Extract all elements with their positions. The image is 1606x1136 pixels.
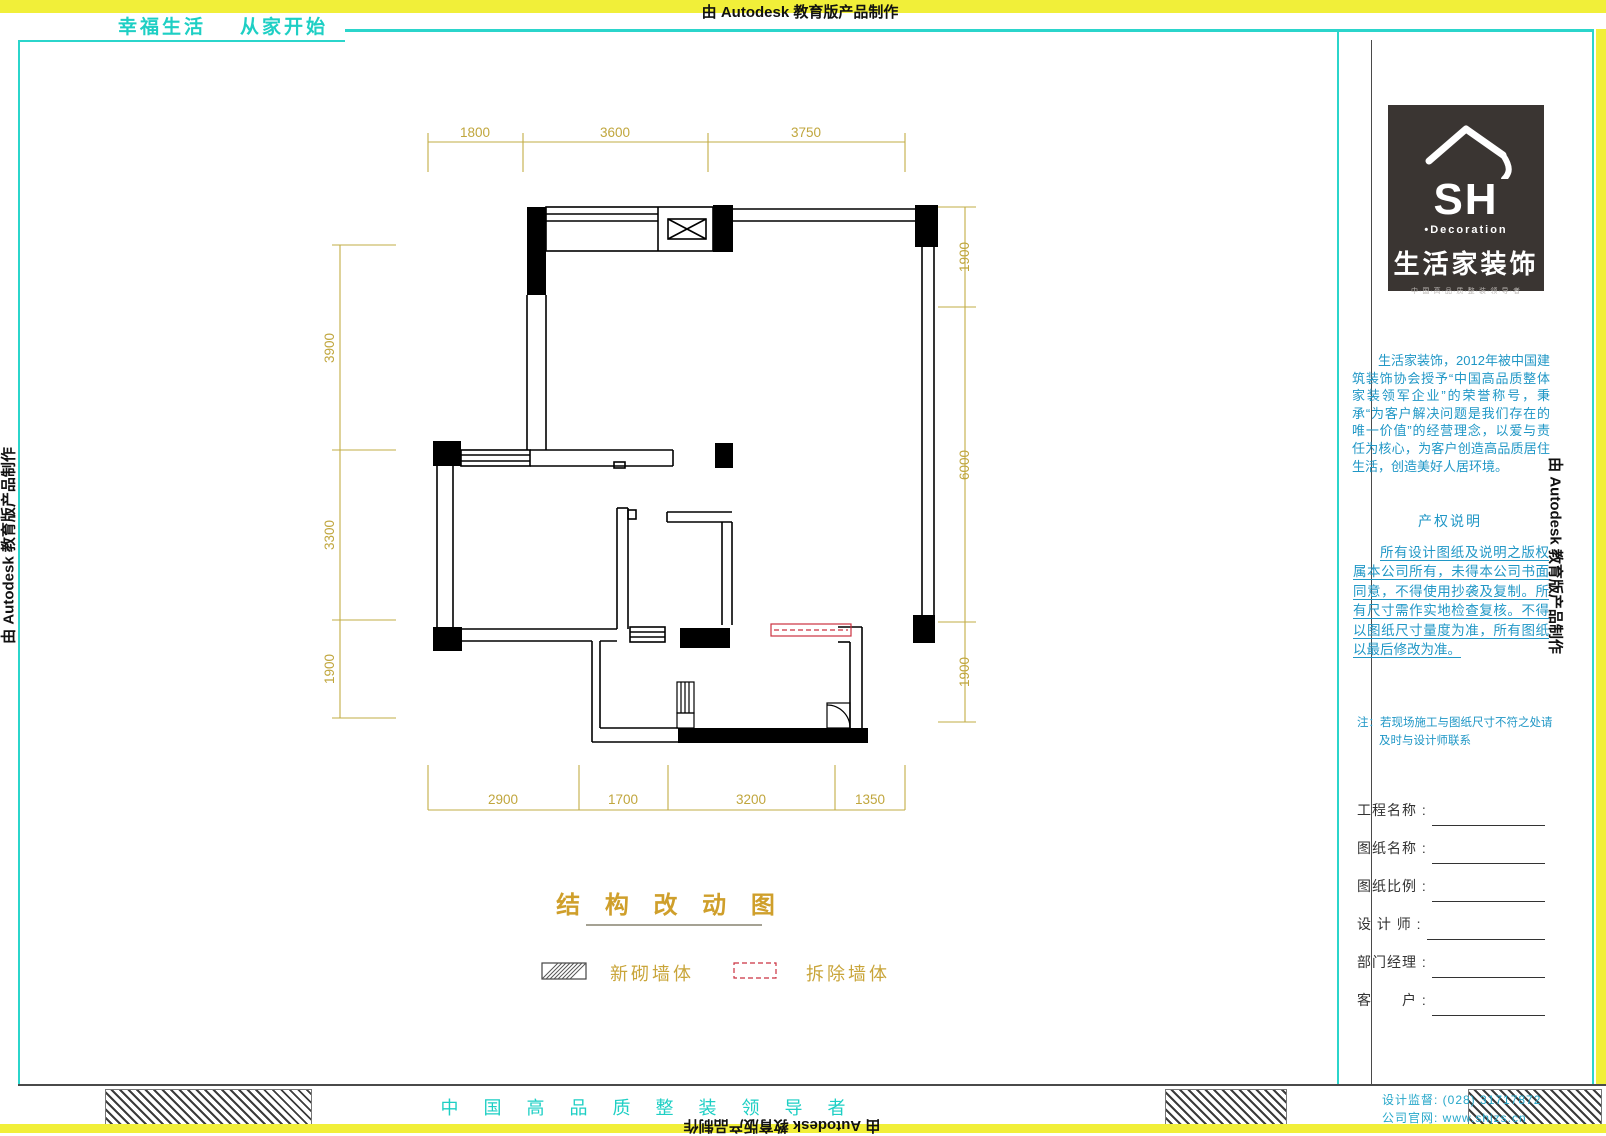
logo-decoration-text: •Decoration xyxy=(1388,224,1544,236)
walls-group xyxy=(433,205,938,743)
bottom-hatch-middle xyxy=(1165,1089,1287,1129)
shaft-x-box xyxy=(668,219,706,239)
dim-right-3: 1900 xyxy=(957,657,972,687)
logo-tagline: 中·国·高·品·质·整·装·领·导·者 xyxy=(1388,286,1544,296)
sheet-name-label: 图纸名称 : xyxy=(1357,838,1427,858)
logo-roof-icon xyxy=(1411,115,1521,179)
dim-left-3: 1900 xyxy=(322,654,337,684)
form-row-scale: 图纸比例 : xyxy=(1357,874,1545,896)
door-swing xyxy=(827,703,850,728)
project-name-blank xyxy=(1432,824,1545,826)
copyright-title: 产权说明 xyxy=(1355,511,1545,531)
company-intro-paragraph: 生活家装饰，2012年被中国建筑装饰协会授予“中国高品质整体家装领军企业”的荣誉… xyxy=(1352,352,1550,475)
autodesk-banner-bottom: 由 Autodesk 教育版产品制作 xyxy=(672,1116,892,1136)
dim-right-1: 1900 xyxy=(957,242,972,272)
dim-bottom-2: 1700 xyxy=(608,792,638,807)
logo-brand-name: 生活家装饰 xyxy=(1388,244,1544,281)
titleblock-form: 工程名称 : 图纸名称 : 图纸比例 : 设 计 师 : 部门经理 : 客 户 … xyxy=(1357,798,1545,1026)
legend-new-wall-label: 新砌墙体 xyxy=(610,964,694,984)
bottom-frame-line xyxy=(18,1084,1606,1086)
company-logo: SH •Decoration 生活家装饰 中·国·高·品·质·整·装·领·导·者 xyxy=(1388,105,1544,291)
design-phone: 设计监督: (028) 31717872 xyxy=(1382,1091,1541,1108)
client-label: 客 户 : xyxy=(1357,990,1427,1010)
dim-bottom-1: 2900 xyxy=(488,792,518,807)
logo-sh-text: SH xyxy=(1388,178,1544,222)
site-note: 注：若现场施工与图纸尺寸不符之处请 及时与设计师联系 xyxy=(1357,714,1562,750)
form-row-project-name: 工程名称 : xyxy=(1357,798,1545,820)
dim-top-1: 1800 xyxy=(460,125,490,140)
dimension-lines xyxy=(332,133,976,810)
dim-bottom-3: 3200 xyxy=(736,792,766,807)
drawing-sheet: 由 Autodesk 教育版产品制作 幸福生活从家开始 由 Autodesk 教… xyxy=(0,0,1606,1136)
site-note-line1: 注：若现场施工与图纸尺寸不符之处请 xyxy=(1357,714,1562,732)
manager-label: 部门经理 : xyxy=(1357,952,1427,972)
ladder-symbol xyxy=(677,682,694,728)
dim-left-2: 3300 xyxy=(322,520,337,550)
designer-label: 设 计 师 : xyxy=(1357,914,1422,934)
bottom-hatch-left xyxy=(105,1089,312,1129)
legend: 新砌墙体 拆除墙体 xyxy=(542,963,890,984)
scale-blank xyxy=(1432,900,1545,902)
designer-blank xyxy=(1427,938,1545,940)
legend-demolish-wall-symbol xyxy=(734,963,776,978)
dim-bottom-4: 1350 xyxy=(855,792,885,807)
sheet-name-blank xyxy=(1432,862,1545,864)
manager-blank xyxy=(1432,976,1545,978)
legend-demolish-wall-label: 拆除墙体 xyxy=(806,964,890,984)
client-blank xyxy=(1432,1014,1545,1016)
demolish-wall-symbol xyxy=(771,624,851,636)
legend-new-wall-symbol xyxy=(542,963,586,979)
form-row-manager: 部门经理 : xyxy=(1357,950,1545,972)
drawing-title: 结 构 改 动 图 xyxy=(556,891,784,919)
dim-top-2: 3600 xyxy=(600,125,630,140)
copyright-paragraph: 所有设计图纸及说明之版权属本公司所有，未得本公司书面同意，不得使用抄袭及复制。所… xyxy=(1353,543,1549,659)
form-row-client: 客 户 : xyxy=(1357,988,1545,1010)
site-note-line2: 及时与设计师联系 xyxy=(1357,732,1562,750)
form-row-designer: 设 计 师 : xyxy=(1357,912,1545,934)
scale-label: 图纸比例 : xyxy=(1357,876,1427,896)
project-name-label: 工程名称 : xyxy=(1357,800,1427,820)
dim-left-1: 3900 xyxy=(322,333,337,363)
form-row-sheet-name: 图纸名称 : xyxy=(1357,836,1545,858)
dim-top-3: 3750 xyxy=(791,125,821,140)
dim-right-2: 6000 xyxy=(957,450,972,480)
